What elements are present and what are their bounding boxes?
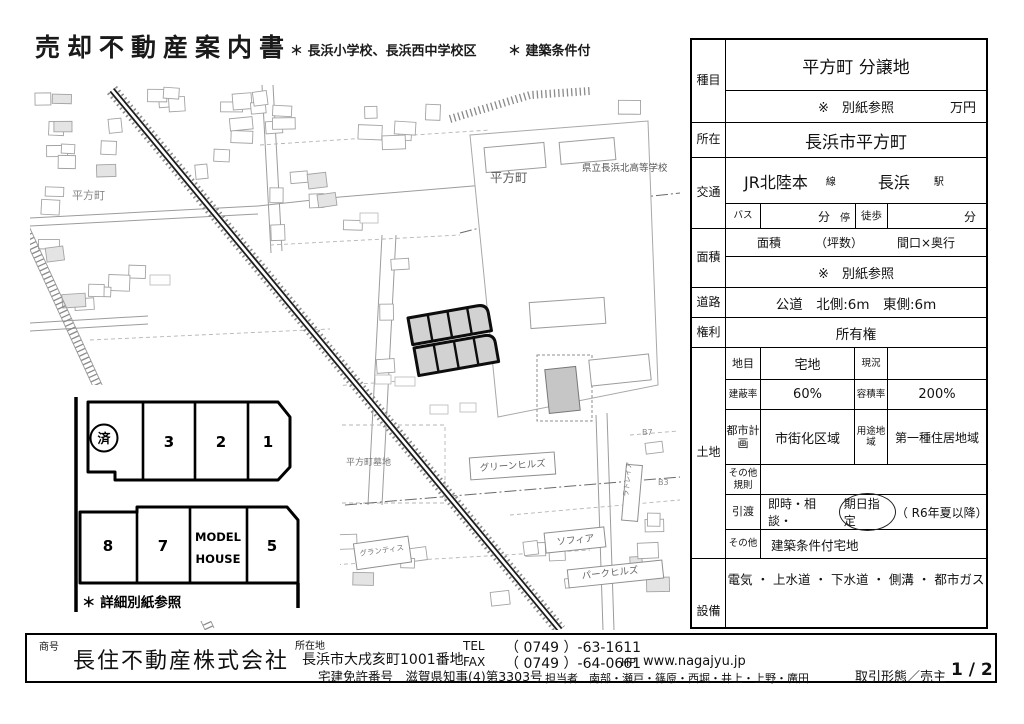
hatched-path-top [450,91,590,119]
zoning-label: 用途地域 [854,410,887,464]
utilities-value: 電気 ・ 上水道 ・ 下水道 ・ 側溝 ・ 都市ガス [726,559,986,627]
map-label-b7: B7 [642,428,653,437]
map-label-town-center: 平方町 [490,170,528,185]
row-type: 種目 平方町 分譲地 ※ 別紙参照 万円 [692,40,986,122]
bus-stop: 停 [840,209,850,224]
far-label: 容積率 [854,380,887,409]
handover-label: 引渡 [726,495,760,529]
area-label: 面積 [692,229,725,287]
handover-post: （ R6年夏以降） [896,504,986,521]
road-value: 公道 北側:6m 東側:6m [726,288,986,317]
area-h3: 間口×奥行 [897,234,955,251]
coverage-value: 60% [760,380,854,409]
fax-label: FAX [463,655,485,669]
hp-label: HP [621,656,636,669]
rail-line-unit: 線 [826,173,836,188]
land-label: 土地 [692,348,725,558]
price-note: ※ 別紙参照 [818,97,894,116]
rights-value: 所有権 [726,318,986,347]
other-label: その他 [726,530,760,558]
land-category-value: 宅地 [760,348,854,379]
school-district-note: ＊ 長浜小学校、長浜西中学校区 [290,40,477,59]
inset-caption: ＊ 詳細別紙参照 [82,594,182,611]
hp-url: www.nagajyu.jp [643,654,746,669]
row-location: 所在 長浜市平方町 [692,122,986,157]
area-h1: 面積 [757,234,781,251]
rail-line-cell: JR北陸本 線 長浜 駅 [726,158,986,203]
row-land-group: 土地 地目 宅地 現況 建蔽率 60% 容積率 200% 都市計画 市街化区域 … [692,347,986,558]
bus-cell: 分 停 [760,204,855,228]
price-unit: 万円 [950,97,976,116]
far-value: 200% [887,380,986,409]
type-value: 平方町 分譲地 [726,40,986,90]
walk-cell: 分 [887,204,986,228]
map-label-school: 県立長浜北高等学校 [582,162,668,174]
row-road: 道路 公道 北側:6m 東側:6m [692,287,986,317]
inset-lot-8: 8 [103,537,113,555]
property-details-table: 種目 平方町 分譲地 ※ 別紙参照 万円 所在 長浜市平方町 交通 JR北陸本 … [690,38,988,629]
inset-lot-7: 7 [158,537,168,555]
current-state-value [887,348,986,379]
inset-lot-sold: 済 [97,431,111,447]
handover-pre: 即時・相談・ [768,495,839,529]
building-condition-note: ＊ 建築条件付 [508,40,591,59]
handover-value: 即時・相談・期日指定（ R6年夏以降） [760,495,986,529]
walk-label: 徒歩 [855,204,887,228]
company-name: 長住不動産株式会社 [73,643,289,675]
page-title: 売却不動産案内書 [35,28,291,64]
area-value: ※ 別紙参照 [726,256,986,287]
inset-lot-5: 5 [267,537,277,555]
other-rules-value [760,465,986,494]
handover-circled: 期日指定 [839,493,896,531]
school-building [545,366,580,413]
staff-list: 担当者 南部・瀬戸・篠原・西堀・井上・上野・廣田 [545,670,809,686]
location-value: 長浜市平方町 [726,123,986,157]
inset-lot-model-house-1: MODEL [195,530,242,544]
station-unit: 駅 [934,173,944,188]
bus-min: 分 [818,208,830,225]
row-utilities: 設備 電気 ・ 上水道 ・ 下水道 ・ 側溝 ・ 都市ガス [692,558,986,627]
deal-type: 取引形態／売主 [855,666,946,685]
city-planning-label: 都市計画 [726,410,760,464]
map-label-b3: B3 [658,478,669,487]
type-label: 種目 [692,40,725,122]
lot-layout-inset: 済 3 2 1 8 7 MODEL HOUSE 5 ＊ 詳細別紙参照 [66,385,340,621]
map-label-town-left: 平方町 [72,188,105,202]
price-cell: ※ 別紙参照 万円 [726,90,986,122]
city-planning-value: 市街化区域 [760,410,854,464]
area-h2: （坪数） [815,234,863,251]
cadastral-map: 平方町 平方町 県立長浜北高等学校 平方町墓地 グリーンヒルズ ソフィア パーク… [30,85,680,630]
utilities-label: 設備 [692,559,725,627]
inset-lot-model-house-2: HOUSE [196,552,241,566]
other-value: 建築条件付宅地 [760,530,986,558]
tel-label: TEL [463,639,485,653]
coverage-label: 建蔽率 [726,380,760,409]
map-label-cemetery: 平方町墓地 [346,456,391,468]
rail-line: JR北陸本 [744,169,808,193]
rights-label: 権利 [692,318,725,347]
location-label: 所在 [692,123,725,157]
page-number: 1 / 2 [951,660,993,680]
walk-min: 分 [964,208,976,225]
inset-lot-2: 2 [216,433,226,451]
transport-label: 交通 [692,158,725,228]
trade-name-label: 商号 [39,638,59,653]
current-state-label: 現況 [854,348,887,379]
station: 長浜 [878,169,910,193]
row-area: 面積 面積 （坪数） 間口×奥行 ※ 別紙参照 [692,228,986,287]
area-header: 面積 （坪数） 間口×奥行 [726,229,986,256]
other-rules-label: その他規則 [726,465,760,494]
inset-lot-1: 1 [263,433,273,451]
inset-lot-3: 3 [164,433,174,451]
bus-label: バス [726,204,760,228]
company-footer: 商号 長住不動産株式会社 所在地 長浜市大戌亥町1001番地 宅建免許番号 滋賀… [25,633,997,683]
land-category-label: 地目 [726,348,760,379]
zoning-value: 第一種住居地域 [887,410,986,464]
row-transport: 交通 JR北陸本 線 長浜 駅 バス 分 停 徒歩 分 [692,157,986,228]
row-rights: 権利 所有権 [692,317,986,347]
road-label: 道路 [692,288,725,317]
